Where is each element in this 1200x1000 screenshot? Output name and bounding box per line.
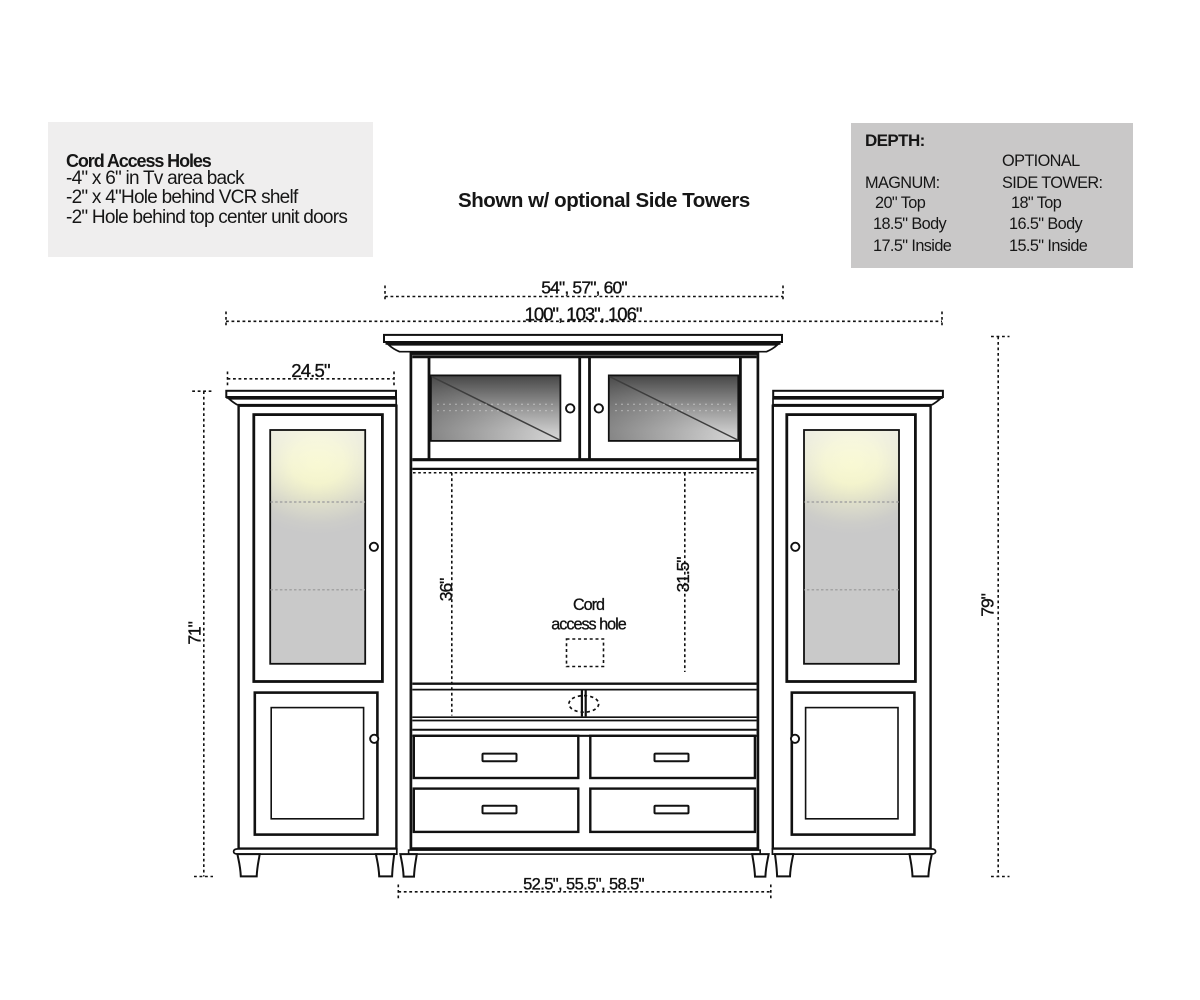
svg-text:71": 71" <box>185 621 205 644</box>
svg-text:36": 36" <box>436 578 456 601</box>
svg-text:54", 57", 60": 54", 57", 60" <box>541 278 627 298</box>
svg-text:Cord: Cord <box>573 596 604 614</box>
svg-text:79": 79" <box>977 593 997 616</box>
svg-text:24.5": 24.5" <box>291 360 330 381</box>
svg-text:100", 103", 106": 100", 103", 106" <box>525 303 642 324</box>
svg-text:52.5", 55.5", 58.5": 52.5", 55.5", 58.5" <box>523 876 645 894</box>
svg-text:31.5": 31.5" <box>673 557 693 593</box>
svg-text:access hole: access hole <box>551 616 626 634</box>
